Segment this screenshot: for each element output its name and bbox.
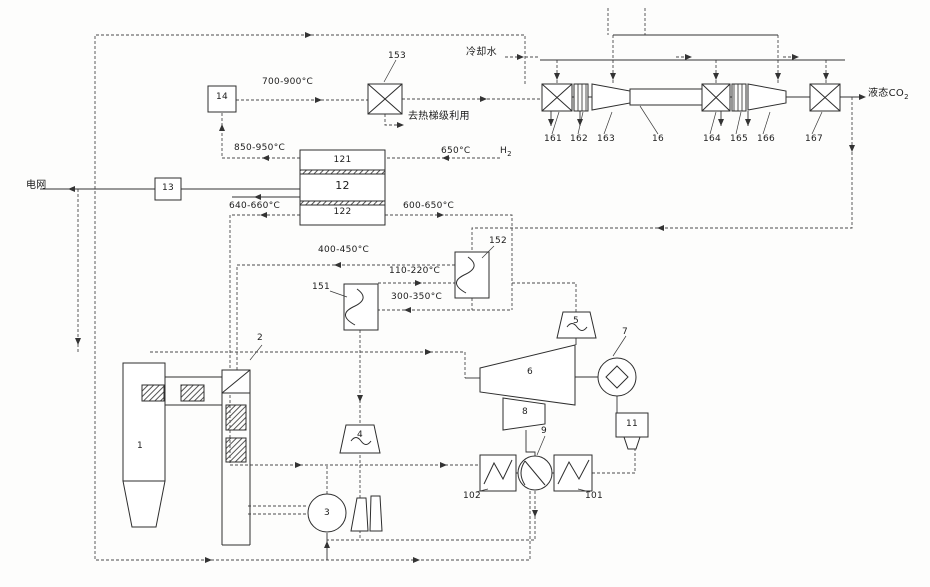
component-165-label: 165	[730, 134, 748, 144]
heat-exchanger-102	[480, 455, 516, 491]
component-9-label: 9	[541, 426, 547, 436]
process-flow-diagram: 电网 13 850-950°C 14 700-900°C 153 去热梯级利用 …	[0, 0, 930, 587]
temp-850-950: 850-950°C	[234, 143, 285, 153]
component-164-label: 164	[703, 134, 721, 144]
separator-165	[732, 84, 746, 111]
co2-train	[542, 84, 840, 111]
cooling-water-label: 冷却水	[466, 48, 497, 58]
component-121-label: 121	[300, 155, 385, 165]
liquid-co2-main: 液态CO	[868, 88, 904, 99]
temp-640-660: 640-660°C	[229, 201, 280, 211]
temp-400-450: 400-450°C	[318, 245, 369, 255]
temp-300-350: 300-350°C	[391, 292, 442, 302]
component-6-label: 6	[520, 367, 540, 377]
heat-exchanger-151	[344, 284, 378, 330]
equipment	[123, 84, 840, 545]
separator-162	[574, 84, 588, 111]
component-1-label: 1	[137, 441, 143, 451]
component-5-label: 5	[566, 316, 586, 326]
grid-label: 电网	[26, 181, 47, 191]
component-101-label: 101	[585, 491, 603, 501]
component-162-label: 162	[570, 134, 588, 144]
cooler-167	[810, 84, 840, 111]
component-11-label: 11	[616, 419, 648, 429]
heat-exchanger-101	[554, 455, 592, 491]
component-8-label: 8	[515, 407, 535, 417]
temp-650: 650°C	[441, 146, 470, 156]
component-122-label: 122	[300, 207, 385, 217]
component-13-label: 13	[155, 183, 181, 193]
heat-exchanger-153	[368, 84, 402, 114]
component-151-label: 151	[312, 282, 330, 292]
component-2-label: 2	[257, 333, 263, 343]
component-163-label: 163	[597, 134, 615, 144]
duct-16	[630, 89, 702, 105]
cooler-164	[702, 84, 730, 111]
component-12-label: 12	[300, 181, 385, 191]
component-14-label: 14	[208, 92, 236, 102]
compressor-166	[748, 84, 786, 110]
compressor-163	[592, 84, 630, 110]
temp-600-650: 600-650°C	[403, 201, 454, 211]
cooler-161	[542, 84, 572, 111]
component-166-label: 166	[757, 134, 775, 144]
temp-700-900: 700-900°C	[262, 77, 313, 87]
generator	[598, 358, 636, 396]
component-7-label: 7	[622, 327, 628, 337]
heat-exchanger-152	[455, 252, 489, 298]
component-4-label: 4	[350, 430, 370, 440]
hydrogen-label: H2	[500, 146, 512, 159]
boiler	[123, 363, 250, 545]
liquid-co2-sub: 2	[904, 93, 909, 101]
component-153-label: 153	[388, 51, 406, 61]
component-152-label: 152	[489, 236, 507, 246]
component-161-label: 161	[544, 134, 562, 144]
component-3-label: 3	[317, 508, 337, 518]
temp-110-220: 110-220°C	[389, 266, 440, 276]
component-102-label: 102	[463, 491, 481, 501]
component-167-label: 167	[805, 134, 823, 144]
pump9	[518, 456, 552, 490]
label-leaders	[250, 60, 822, 492]
h2-sub: 2	[507, 150, 512, 158]
liquid-co2-label: 液态CO2	[868, 89, 909, 102]
component-16-label: 16	[652, 134, 664, 144]
heat-cascade-label: 去热梯级利用	[408, 112, 470, 122]
